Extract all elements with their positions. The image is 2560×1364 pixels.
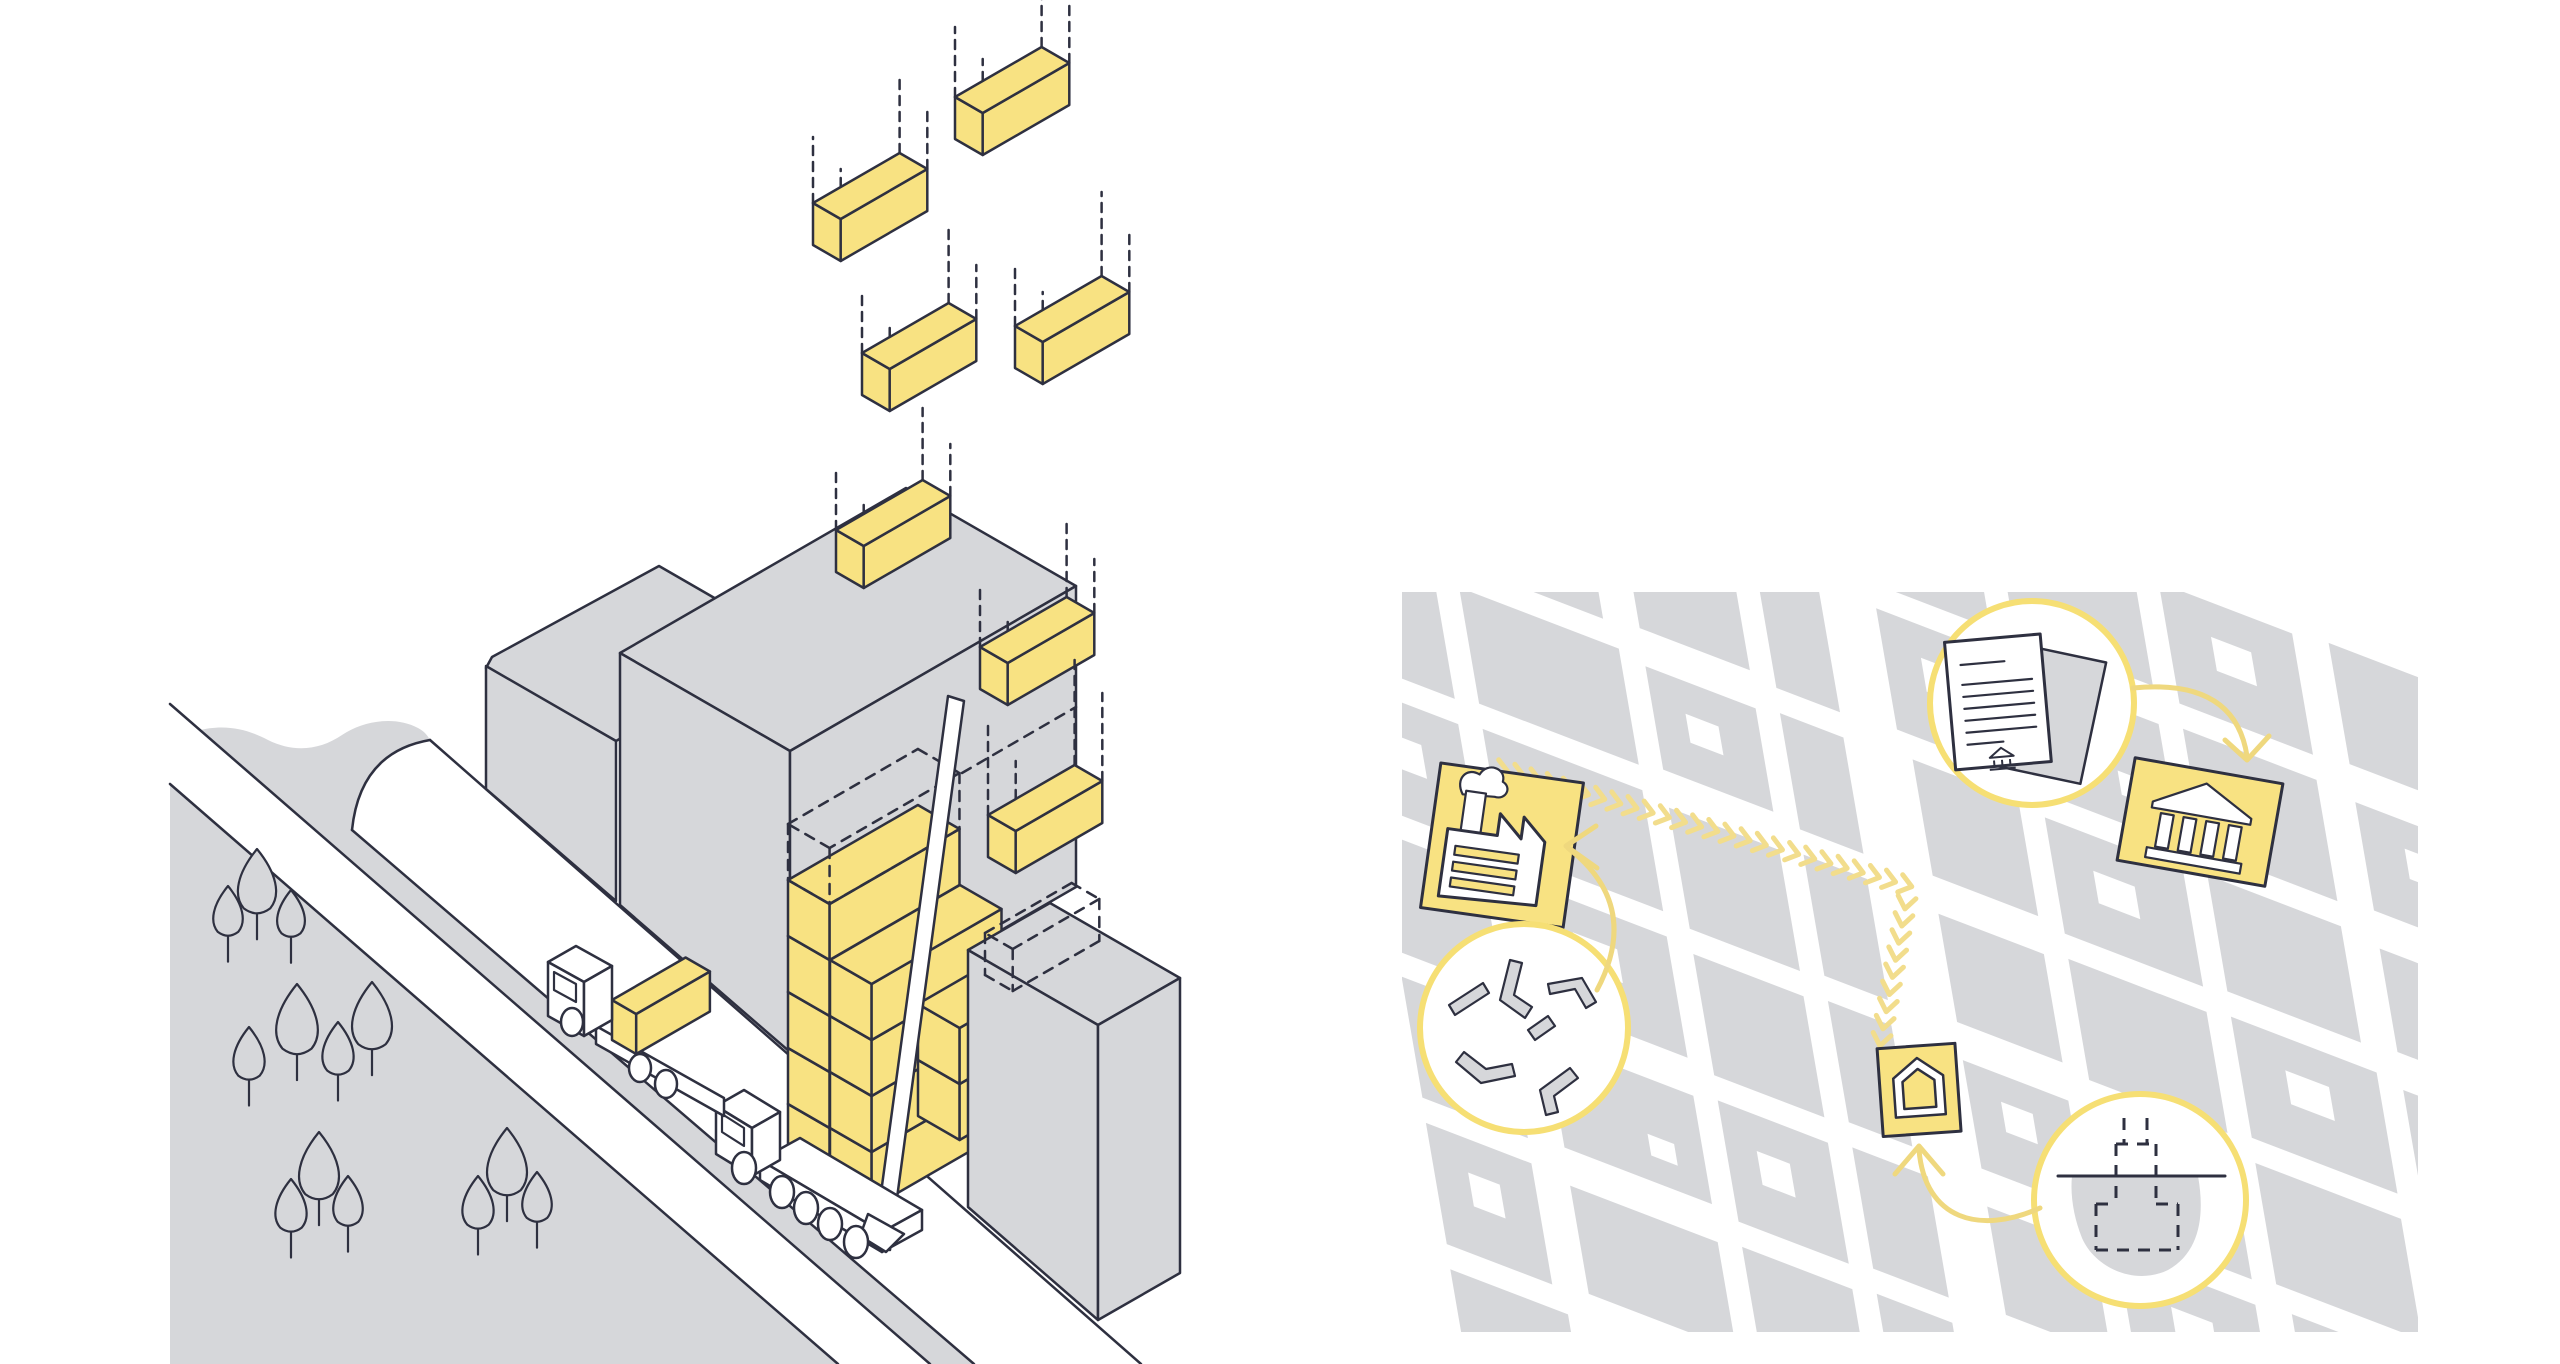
city-block [1852, 462, 1991, 628]
documents-callout [1930, 601, 2134, 805]
city-block [2355, 802, 2512, 963]
route-chevron [1785, 843, 1801, 864]
truck-wheel [655, 1070, 677, 1098]
city-block [1938, 914, 2062, 1063]
route-chevron [1890, 930, 1910, 945]
block-courtyard [1490, 496, 1540, 547]
city-block [1780, 713, 1864, 854]
foundation-callout [2034, 1094, 2246, 1306]
materials-callout [1420, 924, 1628, 1132]
route-chevron [1896, 895, 1916, 910]
city-block [2255, 1163, 2422, 1340]
route-chevron [1898, 875, 1914, 896]
truck-wheel [561, 1008, 583, 1036]
route-chevron [1887, 947, 1907, 962]
city-block [1742, 1247, 1873, 1364]
block-courtyard [2214, 1351, 2243, 1364]
city-block [1595, 1332, 1761, 1364]
floating-module [955, 47, 1069, 155]
city-logistics-map [1280, 249, 2560, 1364]
permit-documents-icon [1945, 634, 2107, 784]
document-front [1945, 634, 2052, 773]
route-chevron [1882, 870, 1898, 891]
city-block [2380, 949, 2536, 1105]
city-block [1731, 420, 1816, 566]
city-block [1756, 567, 1841, 713]
city-block [1280, 249, 1406, 411]
crane-wheel [794, 1192, 818, 1224]
city-block [2329, 643, 2488, 817]
city-block [2292, 1314, 2447, 1364]
route-chevron [1893, 913, 1913, 928]
truck-wheel [629, 1054, 651, 1082]
route-chevron [1884, 964, 1904, 979]
floating-module [813, 153, 927, 261]
city-block [2207, 875, 2361, 1043]
crane-wheel [770, 1176, 794, 1208]
crane-wheel [818, 1208, 842, 1240]
route-chevron [1865, 866, 1881, 887]
block-courtyard [1538, 543, 1569, 577]
city-block [1877, 1294, 1974, 1364]
floating-module [1015, 276, 1129, 384]
illustration-svg [0, 0, 2560, 1364]
city-block [2428, 1236, 2560, 1364]
block-courtyard [2499, 1183, 2528, 1214]
block-courtyard [1319, 301, 1357, 347]
isometric-construction-site [170, 0, 1180, 1364]
page-canvas [0, 0, 2560, 1364]
crane-wheel [844, 1226, 868, 1258]
city-block [1305, 396, 1431, 558]
site-tile [1877, 1043, 1961, 1136]
city-block [1329, 542, 1455, 699]
factory-tile [1421, 760, 1584, 927]
city-block [1693, 954, 1824, 1117]
city-block [1410, 295, 1579, 473]
city-block [1570, 1186, 1736, 1351]
materials-callout-circle [1420, 924, 1628, 1132]
city-block [1621, 520, 1750, 671]
block-courtyard [2477, 1292, 2524, 1342]
crane-wheel [732, 1152, 756, 1184]
city-block [1450, 1269, 1589, 1364]
route-chevron [1877, 998, 1897, 1013]
city-block [2403, 1090, 2560, 1251]
floating-module [862, 303, 976, 411]
city-block [2012, 1353, 2138, 1364]
city-block [1597, 373, 1726, 524]
